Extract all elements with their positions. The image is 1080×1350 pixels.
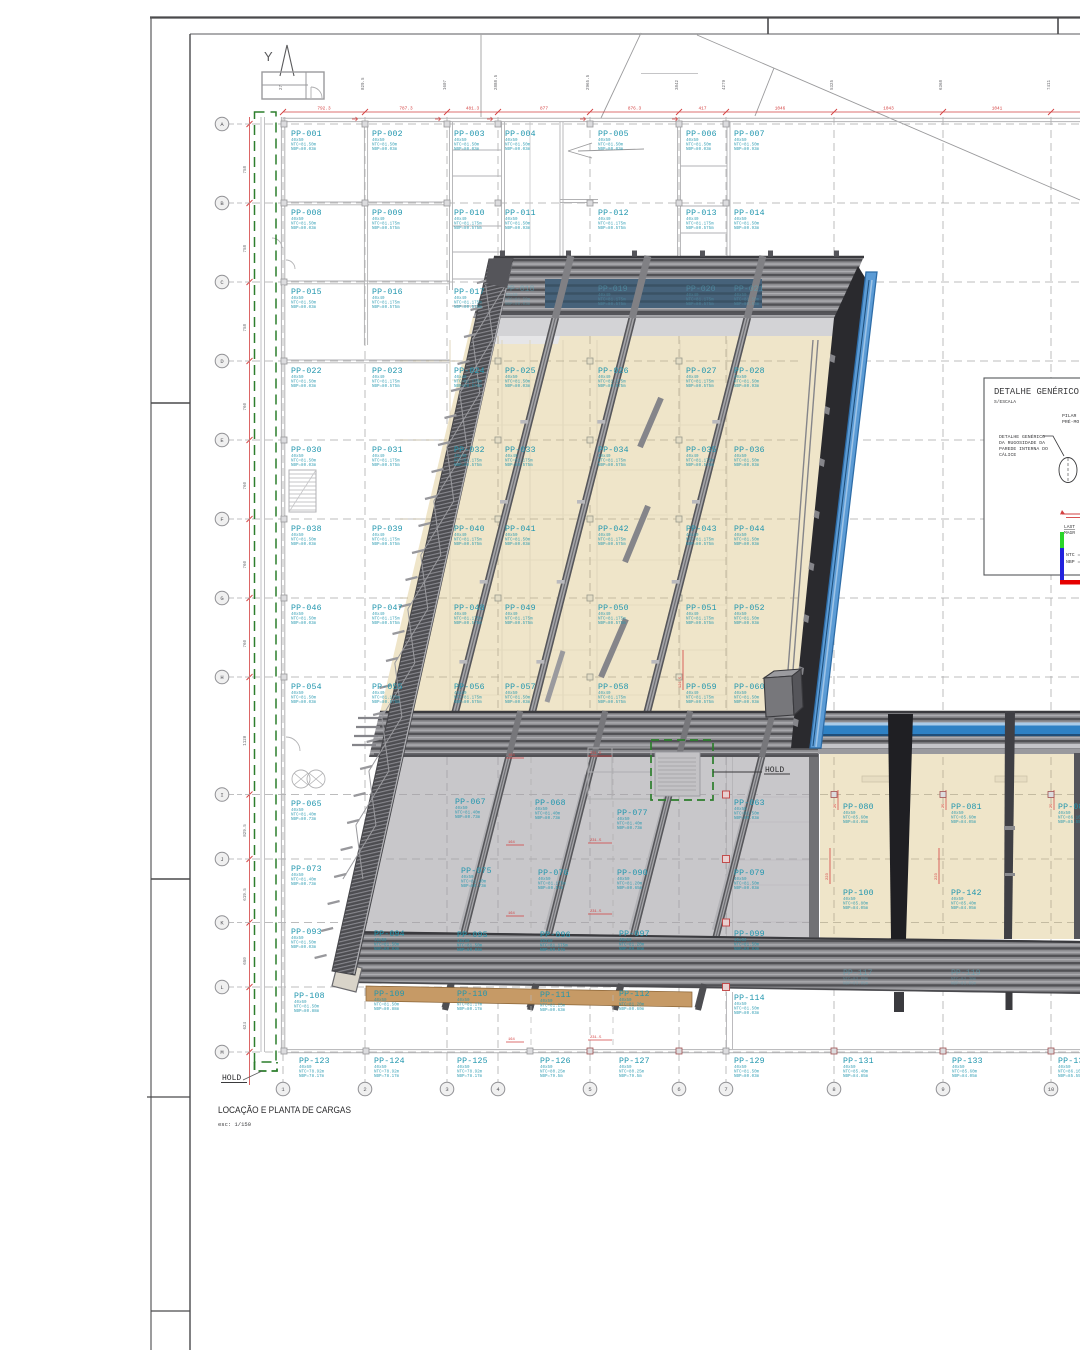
- svg-text:NTC=81.50m: NTC=81.50m: [734, 1071, 760, 1075]
- svg-text:NTC=81.17m: NTC=81.17m: [457, 1004, 483, 1008]
- svg-text:NBP=80.03m: NBP=80.03m: [734, 887, 760, 891]
- svg-text:NBP=80.03m: NBP=80.03m: [291, 148, 317, 152]
- svg-text:PP-100: PP-100: [843, 889, 874, 898]
- svg-text:40x50: 40x50: [291, 613, 304, 617]
- svg-text:PP-096: PP-096: [540, 931, 571, 940]
- svg-text:NTC=81.175m: NTC=81.175m: [454, 618, 482, 622]
- svg-text:NTC=81.175m: NTC=81.175m: [540, 945, 568, 949]
- svg-text:NTC=85.40m: NTC=85.40m: [843, 1071, 869, 1075]
- svg-text:NBP=80.73m: NBP=80.73m: [535, 817, 561, 821]
- svg-text:7: 7: [724, 1086, 727, 1093]
- svg-text:25: 25: [1050, 804, 1054, 808]
- svg-text:PP-124: PP-124: [374, 1057, 405, 1066]
- svg-text:40x50: 40x50: [291, 139, 304, 143]
- svg-text:NBP=79.5m: NBP=79.5m: [619, 1075, 642, 1079]
- svg-text:NTC=81.175m: NTC=81.175m: [372, 539, 400, 543]
- svg-text:NBP=80.575m: NBP=80.575m: [454, 543, 482, 547]
- svg-text:NBP=80.65m: NBP=80.65m: [619, 948, 645, 952]
- svg-text:DETALHE GENÉRICO: DETALHE GENÉRICO: [994, 386, 1079, 397]
- svg-text:PP-079: PP-079: [734, 869, 765, 878]
- svg-text:NTC=81.50m: NTC=81.50m: [505, 697, 531, 701]
- svg-text:NBP=80.93m: NBP=80.93m: [734, 227, 760, 231]
- svg-text:1046: 1046: [775, 107, 786, 112]
- svg-text:NBP=80.575m: NBP=80.575m: [598, 303, 626, 307]
- svg-text:40x50: 40x50: [291, 534, 304, 538]
- svg-text:40x50: 40x50: [734, 808, 747, 812]
- svg-text:PP-058: PP-058: [598, 683, 629, 692]
- svg-text:PP-027: PP-027: [686, 367, 717, 376]
- svg-text:10: 10: [1048, 1086, 1055, 1093]
- svg-text:PP-044: PP-044: [734, 525, 765, 534]
- svg-text:PP-052: PP-052: [734, 604, 765, 613]
- svg-text:PP-081: PP-081: [951, 803, 982, 812]
- svg-text:PP-127: PP-127: [619, 1057, 650, 1066]
- svg-text:PP-051: PP-051: [686, 604, 717, 613]
- svg-text:40x50: 40x50: [461, 876, 474, 880]
- svg-text:40x40: 40x40: [505, 613, 518, 617]
- svg-text:NTC=81.175m: NTC=81.175m: [598, 539, 626, 543]
- svg-text:PP-015: PP-015: [291, 288, 322, 297]
- svg-text:PP-114: PP-114: [734, 994, 765, 1003]
- svg-text:223: 223: [935, 872, 939, 880]
- svg-text:NTC=81.175m: NTC=81.175m: [686, 460, 714, 464]
- svg-text:NBP=80.73m: NBP=80.73m: [291, 818, 317, 822]
- svg-text:40x40: 40x40: [454, 297, 467, 301]
- svg-text:NBP=80.03m: NBP=80.03m: [734, 817, 760, 821]
- svg-text:NTC=81.50m: NTC=81.50m: [734, 460, 760, 464]
- svg-text:40x40: 40x40: [372, 692, 385, 696]
- svg-text:LOCAÇÃO E PLANTA DE CARGAS: LOCAÇÃO E PLANTA DE CARGAS: [218, 1105, 351, 1116]
- svg-text:NTC=81.50m: NTC=81.50m: [291, 697, 317, 701]
- svg-text:NBP=80.03m: NBP=80.03m: [734, 1012, 760, 1016]
- svg-text:NBP=80.575m: NBP=80.575m: [372, 543, 400, 547]
- svg-text:7411: 7411: [1048, 79, 1052, 90]
- svg-text:NTC=81.50m: NTC=81.50m: [372, 144, 398, 148]
- svg-text:40x50: 40x50: [374, 999, 387, 1003]
- svg-text:NTC=81.175m: NTC=81.175m: [454, 223, 482, 227]
- svg-text:40x50: 40x50: [843, 812, 856, 816]
- svg-text:NTC=81.175m: NTC=81.175m: [454, 302, 482, 306]
- svg-text:40x50: 40x50: [505, 534, 518, 538]
- svg-text:40x50: 40x50: [505, 294, 518, 298]
- svg-text:40x60: 40x60: [294, 1001, 307, 1005]
- svg-text:NBP=80.575m: NBP=80.575m: [686, 385, 714, 389]
- svg-text:792.3: 792.3: [317, 107, 331, 112]
- svg-text:40x50: 40x50: [291, 218, 304, 222]
- svg-text:40x50: 40x50: [734, 1066, 747, 1070]
- svg-text:NBP=78.17m: NBP=78.17m: [457, 1075, 483, 1079]
- svg-text:829.5: 829.5: [244, 824, 248, 837]
- svg-text:164: 164: [508, 1038, 516, 1042]
- svg-text:NBP=80.03m: NBP=80.03m: [686, 148, 712, 152]
- svg-text:NBP=80.03m: NBP=80.03m: [734, 948, 760, 952]
- svg-text:40x50: 40x50: [598, 139, 611, 143]
- svg-text:40x50: 40x50: [374, 939, 387, 943]
- svg-text:PP-063: PP-063: [734, 799, 765, 808]
- svg-text:NBP=80.03m: NBP=80.03m: [291, 464, 317, 468]
- svg-text:PP-049: PP-049: [505, 604, 536, 613]
- svg-text:NTC=81.175m: NTC=81.175m: [454, 697, 482, 701]
- svg-text:NBP=78.17m: NBP=78.17m: [374, 1075, 400, 1079]
- svg-text:NTC=81.50m: NTC=81.50m: [598, 144, 624, 148]
- svg-text:NBP=80.03m: NBP=80.03m: [291, 227, 317, 231]
- svg-text:NBP=80.575m: NBP=80.575m: [686, 227, 714, 231]
- svg-text:40x40: 40x40: [454, 613, 467, 617]
- svg-text:LAST: LAST: [1064, 524, 1075, 530]
- svg-text:758: 758: [244, 165, 248, 173]
- svg-text:NTC=81.175m: NTC=81.175m: [372, 381, 400, 385]
- svg-text:NTC=81.20m: NTC=81.20m: [617, 883, 643, 887]
- svg-text:NBP=80.575m: NBP=80.575m: [598, 464, 626, 468]
- svg-text:PP-026: PP-026: [598, 367, 629, 376]
- svg-text:NBP=80.03m: NBP=80.03m: [291, 543, 317, 547]
- svg-text:40x50: 40x50: [1058, 1066, 1071, 1070]
- svg-text:NBP=83.05m: NBP=83.05m: [951, 983, 977, 987]
- svg-text:NBP=80.03m: NBP=80.03m: [374, 948, 400, 952]
- svg-text:40x50: 40x50: [734, 139, 747, 143]
- svg-text:NTC=81.50m: NTC=81.50m: [291, 460, 317, 464]
- svg-text:NTC=81.50m: NTC=81.50m: [505, 381, 531, 385]
- svg-text:PP-023: PP-023: [372, 367, 403, 376]
- svg-text:829.5: 829.5: [362, 77, 366, 90]
- svg-text:758: 758: [244, 244, 248, 252]
- svg-text:NTC=86.10m: NTC=86.10m: [1058, 817, 1080, 821]
- svg-text:PP-009: PP-009: [372, 209, 403, 218]
- svg-text:40x50: 40x50: [291, 692, 304, 696]
- svg-text:NBP=80.575m: NBP=80.575m: [598, 543, 626, 547]
- svg-text:760: 760: [244, 639, 248, 647]
- svg-text:121.5: 121.5: [679, 676, 683, 688]
- svg-text:NBP =: NBP =: [1066, 559, 1080, 565]
- svg-text:NBP=80.575m: NBP=80.575m: [372, 622, 400, 626]
- svg-text:787.3: 787.3: [399, 107, 413, 112]
- svg-text:I: I: [220, 792, 223, 799]
- svg-text:NBP=80.03m: NBP=80.03m: [454, 148, 480, 152]
- svg-text:40x50: 40x50: [505, 692, 518, 696]
- svg-text:NTC=81.40m: NTC=81.40m: [617, 823, 643, 827]
- svg-text:NBP=80.03m: NBP=80.03m: [372, 148, 398, 152]
- svg-text:40x50: 40x50: [734, 692, 747, 696]
- svg-text:164: 164: [508, 754, 516, 758]
- svg-text:NBP=80.88m: NBP=80.88m: [374, 1008, 400, 1012]
- svg-text:NBP=80.93m: NBP=80.93m: [505, 227, 531, 231]
- svg-text:PP-006: PP-006: [686, 130, 717, 139]
- svg-text:40x50: 40x50: [457, 999, 470, 1003]
- svg-text:40x50: 40x50: [457, 940, 470, 944]
- svg-text:40x50: 40x50: [454, 139, 467, 143]
- svg-text:PP-109: PP-109: [374, 990, 405, 999]
- svg-text:J: J: [220, 856, 223, 863]
- svg-text:40x50: 40x50: [372, 139, 385, 143]
- svg-text:PP-142: PP-142: [951, 889, 982, 898]
- svg-text:PP-119: PP-119: [951, 969, 981, 978]
- svg-text:NTC=81.50m: NTC=81.50m: [291, 618, 317, 622]
- svg-text:PP-018: PP-018: [505, 285, 535, 294]
- svg-text:PP-059: PP-059: [686, 683, 717, 692]
- svg-text:40x50: 40x50: [734, 376, 747, 380]
- svg-text:NBP=80.575m: NBP=80.575m: [372, 227, 400, 231]
- svg-text:NBP=80.575m: NBP=80.575m: [686, 464, 714, 468]
- svg-text:PP-082: PP-082: [1058, 803, 1080, 812]
- svg-text:PP-002: PP-002: [372, 130, 403, 139]
- svg-text:PP-016: PP-016: [372, 288, 403, 297]
- svg-text:40x40: 40x40: [598, 294, 611, 298]
- svg-text:NBP=78.17m: NBP=78.17m: [299, 1075, 325, 1079]
- svg-text:40x50: 40x50: [291, 809, 304, 813]
- svg-text:PP-060: PP-060: [734, 683, 765, 692]
- svg-text:NBP=80.03m: NBP=80.03m: [505, 148, 531, 152]
- svg-text:NBP=80.575m: NBP=80.575m: [372, 385, 400, 389]
- svg-text:NTC=81.50m: NTC=81.50m: [734, 618, 760, 622]
- svg-text:PP-068: PP-068: [535, 799, 566, 808]
- svg-text:40x40: 40x40: [454, 455, 467, 459]
- svg-text:40x50: 40x50: [291, 455, 304, 459]
- svg-text:NBP=80.575m: NBP=80.575m: [454, 701, 482, 705]
- svg-text:NTC=80.25m: NTC=80.25m: [619, 1071, 645, 1075]
- svg-text:NTC=81.50m: NTC=81.50m: [291, 539, 317, 543]
- svg-text:NBP=80.03m: NBP=80.03m: [291, 701, 317, 705]
- svg-text:NTC=81.50m: NTC=81.50m: [457, 945, 483, 949]
- svg-text:NBP=80.575m: NBP=80.575m: [598, 622, 626, 626]
- svg-text:40x50: 40x50: [951, 812, 964, 816]
- svg-text:40x50: 40x50: [457, 1066, 470, 1070]
- svg-text:NBP=80.575m: NBP=80.575m: [686, 701, 714, 705]
- svg-text:NBP=84.05m: NBP=84.05m: [843, 821, 869, 825]
- svg-text:877: 877: [540, 107, 548, 112]
- svg-text:NBP=80.93m: NBP=80.93m: [734, 385, 760, 389]
- svg-text:40x40: 40x40: [686, 534, 699, 538]
- svg-text:NTC=81.50m: NTC=81.50m: [734, 381, 760, 385]
- svg-text:9: 9: [941, 1086, 944, 1093]
- svg-text:PILAR: PILAR: [1062, 413, 1077, 419]
- svg-text:NBP=80.03m: NBP=80.03m: [734, 303, 760, 307]
- svg-text:PP-076: PP-076: [538, 869, 569, 878]
- svg-text:NBP=80.575m: NBP=80.575m: [598, 227, 626, 231]
- svg-text:NTC=85.40m: NTC=85.40m: [951, 903, 977, 907]
- svg-text:PP-046: PP-046: [291, 604, 322, 613]
- svg-text:2965.5: 2965.5: [587, 74, 591, 90]
- svg-text:PP-024: PP-024: [454, 367, 485, 376]
- svg-text:G: G: [220, 595, 223, 602]
- svg-text:40x40: 40x40: [686, 455, 699, 459]
- svg-text:NBP=80.03m: NBP=80.03m: [291, 622, 317, 626]
- svg-text:40x50: 40x50: [734, 218, 747, 222]
- svg-text:40x40: 40x40: [686, 218, 699, 222]
- svg-text:NBP=80.575m: NBP=80.575m: [372, 306, 400, 310]
- svg-text:NBP=80.73m: NBP=80.73m: [461, 885, 487, 889]
- svg-text:760: 760: [244, 402, 248, 410]
- svg-text:NBP=79.5m: NBP=79.5m: [540, 1075, 563, 1079]
- svg-text:25: 25: [942, 804, 946, 808]
- svg-text:PP-126: PP-126: [540, 1057, 571, 1066]
- svg-text:PP-005: PP-005: [598, 130, 629, 139]
- svg-text:PP-003: PP-003: [454, 130, 485, 139]
- svg-text:40x50: 40x50: [291, 937, 304, 941]
- svg-text:231.5: 231.5: [590, 839, 602, 843]
- svg-text:223: 223: [826, 872, 830, 880]
- svg-text:PP-077: PP-077: [617, 809, 648, 818]
- svg-text:F: F: [220, 516, 223, 523]
- svg-text:40x50: 40x50: [374, 1066, 387, 1070]
- svg-text:40x40: 40x40: [686, 294, 699, 298]
- svg-text:PP-094: PP-094: [374, 930, 405, 939]
- svg-text:NTC=81.50m: NTC=81.50m: [734, 299, 760, 303]
- svg-text:NBP=85.55m: NBP=85.55m: [1058, 821, 1080, 825]
- svg-text:40x50: 40x50: [540, 1066, 553, 1070]
- svg-text:40x50: 40x50: [952, 1066, 965, 1070]
- svg-text:NTC=81.175m: NTC=81.175m: [505, 618, 533, 622]
- svg-text:NBP=80.93m: NBP=80.93m: [734, 464, 760, 468]
- svg-text:40x50: 40x50: [1058, 812, 1071, 816]
- svg-text:40x40: 40x40: [686, 376, 699, 380]
- svg-text:NTC=81.175m: NTC=81.175m: [598, 618, 626, 622]
- svg-text:1043: 1043: [883, 107, 894, 112]
- svg-text:NTC=81.40m: NTC=81.40m: [291, 814, 317, 818]
- svg-text:H: H: [220, 674, 223, 681]
- svg-text:PP-008: PP-008: [291, 209, 322, 218]
- svg-text:760: 760: [244, 560, 248, 568]
- svg-text:NTC=78.92m: NTC=78.92m: [299, 1071, 325, 1075]
- svg-text:40x50: 40x50: [951, 898, 964, 902]
- svg-text:NTC=81.175m: NTC=81.175m: [686, 381, 714, 385]
- svg-text:PP-080: PP-080: [843, 803, 874, 812]
- svg-text:NTC=81.175m: NTC=81.175m: [686, 223, 714, 227]
- svg-text:NBP=80.575m: NBP=80.575m: [454, 385, 482, 389]
- svg-text:NBP=80.88m: NBP=80.88m: [294, 1010, 320, 1014]
- svg-text:NTC=81.175m: NTC=81.175m: [598, 223, 626, 227]
- svg-text:NTC=85.80m: NTC=85.80m: [843, 903, 869, 907]
- svg-text:PP-093: PP-093: [291, 928, 322, 937]
- svg-text:NBP=80.575m: NBP=80.575m: [686, 303, 714, 307]
- svg-text:NBP=80.60m: NBP=80.60m: [619, 1008, 645, 1012]
- svg-text:NTC=81.50m: NTC=81.50m: [686, 144, 712, 148]
- svg-text:1120: 1120: [244, 735, 248, 746]
- svg-text:NTC=85.60m: NTC=85.60m: [951, 817, 977, 821]
- svg-text:NBP=80.17m: NBP=80.17m: [457, 1008, 483, 1012]
- svg-text:40x50: 40x50: [734, 455, 747, 459]
- svg-text:NTC=81.175m: NTC=81.175m: [372, 302, 400, 306]
- svg-text:NBP=80.575m: NBP=80.575m: [598, 701, 626, 705]
- svg-text:40x50: 40x50: [734, 613, 747, 617]
- svg-text:8: 8: [832, 1086, 835, 1093]
- svg-text:6368: 6368: [940, 79, 944, 90]
- svg-text:619.5: 619.5: [244, 888, 248, 901]
- svg-text:40x50: 40x50: [734, 294, 747, 298]
- svg-text:PP-014: PP-014: [734, 209, 765, 218]
- svg-text:PP-038: PP-038: [291, 525, 322, 534]
- svg-text:NTC=81.20m: NTC=81.20m: [619, 1004, 645, 1008]
- svg-text:40x60: 40x60: [299, 1066, 312, 1070]
- svg-text:40x50: 40x50: [291, 297, 304, 301]
- svg-text:NBP=80.73m: NBP=80.73m: [617, 827, 643, 831]
- svg-text:NTC=81.50m: NTC=81.50m: [734, 144, 760, 148]
- svg-text:1041: 1041: [992, 107, 1003, 112]
- svg-text:40x50: 40x50: [734, 939, 747, 943]
- svg-text:624: 624: [244, 1021, 248, 1029]
- svg-text:DA RUGOSIDADE DA: DA RUGOSIDADE DA: [999, 440, 1045, 446]
- svg-text:1607: 1607: [444, 79, 448, 90]
- svg-text:NTC=81.175m: NTC=81.175m: [598, 697, 626, 701]
- svg-text:NTC=81.20m: NTC=81.20m: [619, 944, 645, 948]
- svg-text:NBP=80.03m: NBP=80.03m: [505, 543, 531, 547]
- svg-text:NTC=85.60m: NTC=85.60m: [843, 817, 869, 821]
- svg-text:PP-123: PP-123: [299, 1057, 330, 1066]
- svg-text:NBP=80.93m: NBP=80.93m: [734, 622, 760, 626]
- svg-text:40x40: 40x40: [598, 218, 611, 222]
- svg-text:40x40: 40x40: [372, 613, 385, 617]
- svg-text:NTC=81.50m: NTC=81.50m: [734, 697, 760, 701]
- svg-text:NTC=81.50m: NTC=81.50m: [374, 944, 400, 948]
- svg-text:NBP=84.85m: NBP=84.85m: [843, 1075, 869, 1079]
- svg-text:PP-041: PP-041: [505, 525, 536, 534]
- svg-text:NBP=80.65m: NBP=80.65m: [617, 887, 643, 891]
- svg-text:NBP=80.03m: NBP=80.03m: [598, 148, 624, 152]
- svg-text:NBP=80.575m: NBP=80.575m: [686, 622, 714, 626]
- svg-text:650: 650: [244, 957, 248, 965]
- svg-text:PP-020: PP-020: [686, 285, 716, 294]
- svg-text:NBP=80.03m: NBP=80.03m: [505, 385, 531, 389]
- svg-text:NTC=81.50m: NTC=81.50m: [291, 381, 317, 385]
- svg-text:NTC=81.175m: NTC=81.175m: [598, 381, 626, 385]
- svg-text:40x40: 40x40: [454, 534, 467, 538]
- svg-text:NTC=81.50m: NTC=81.50m: [734, 883, 760, 887]
- svg-text:PP-043: PP-043: [686, 525, 717, 534]
- svg-text:40x50: 40x50: [538, 878, 551, 882]
- svg-text:PP-050: PP-050: [598, 604, 629, 613]
- svg-text:PP-025: PP-025: [505, 367, 536, 376]
- svg-text:PP-032: PP-032: [454, 446, 485, 455]
- svg-text:NBP=80.575m: NBP=80.575m: [372, 701, 400, 705]
- svg-text:NTC=81.175m: NTC=81.175m: [454, 381, 482, 385]
- svg-text:NTC=81.40m: NTC=81.40m: [291, 879, 317, 883]
- svg-text:PP-033: PP-033: [505, 446, 536, 455]
- svg-text:NTC=81.50m: NTC=81.50m: [734, 813, 760, 817]
- svg-text:PP-048: PP-048: [454, 604, 485, 613]
- svg-text:NBP=85.55m: NBP=85.55m: [1058, 1075, 1080, 1079]
- svg-text:NTC=78.92m: NTC=78.92m: [457, 1071, 483, 1075]
- svg-text:PRÉ-MO: PRÉ-MO: [1062, 418, 1079, 425]
- svg-text:PP-054: PP-054: [291, 683, 322, 692]
- svg-text:PP-040: PP-040: [454, 525, 485, 534]
- svg-text:NTC=83.30m: NTC=83.30m: [951, 978, 977, 982]
- svg-text:40x50: 40x50: [619, 999, 632, 1003]
- svg-text:PP-019: PP-019: [598, 285, 628, 294]
- svg-text:40x50: 40x50: [505, 139, 518, 143]
- svg-text:NTC=81.40m: NTC=81.40m: [535, 813, 561, 817]
- svg-text:NTC=83.60m: NTC=83.60m: [843, 978, 869, 982]
- svg-text:40x40: 40x40: [454, 692, 467, 696]
- svg-text:PP-047: PP-047: [372, 604, 403, 613]
- svg-text:PP-010: PP-010: [454, 209, 485, 218]
- svg-text:PP-133: PP-133: [952, 1057, 983, 1066]
- svg-text:NTC =: NTC =: [1066, 552, 1080, 558]
- svg-text:PP-007: PP-007: [734, 130, 765, 139]
- svg-text:NBP=80.03m: NBP=80.03m: [291, 306, 317, 310]
- svg-text:PP-110: PP-110: [457, 990, 488, 999]
- svg-text:NBP=80.73m: NBP=80.73m: [455, 816, 481, 820]
- svg-text:PAREDE INTERNA DO: PAREDE INTERNA DO: [999, 446, 1048, 452]
- svg-text:PP-013: PP-013: [686, 209, 717, 218]
- svg-text:40x50: 40x50: [505, 218, 518, 222]
- svg-text:PP-030: PP-030: [291, 446, 322, 455]
- svg-text:40x50: 40x50: [617, 818, 630, 822]
- svg-text:PP-035: PP-035: [686, 446, 717, 455]
- svg-text:40x50: 40x50: [843, 898, 856, 902]
- svg-text:NTC=81.175m: NTC=81.175m: [686, 539, 714, 543]
- svg-text:231.5: 231.5: [590, 910, 602, 914]
- svg-text:NTC=80.25m: NTC=80.25m: [540, 1071, 566, 1075]
- svg-text:NBP=80.63m: NBP=80.63m: [540, 1009, 566, 1013]
